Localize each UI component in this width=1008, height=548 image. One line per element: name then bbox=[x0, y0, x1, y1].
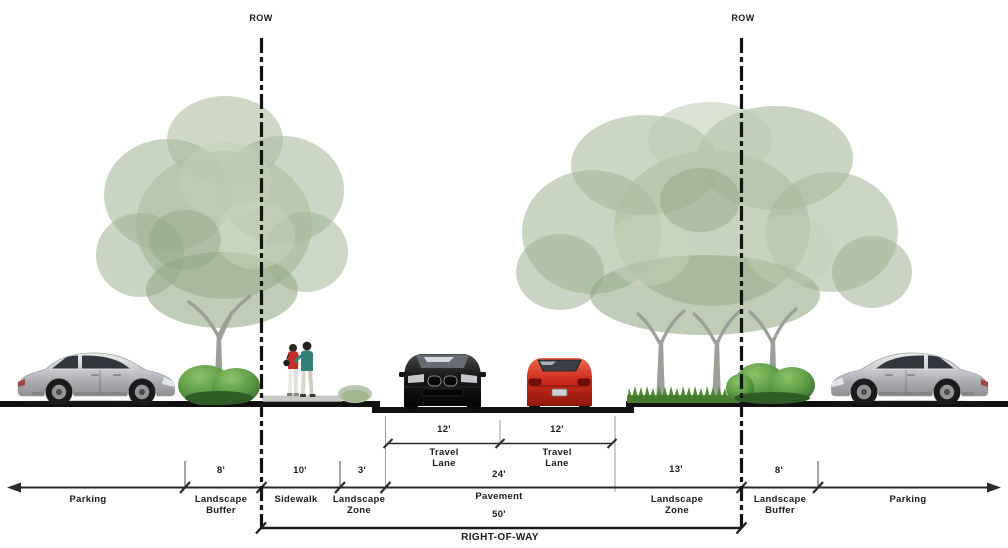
label-right-of-way: RIGHT-OF-WAY bbox=[461, 532, 539, 543]
label-parking-left: Parking bbox=[70, 494, 107, 505]
shrub-landscape-buffer-right bbox=[726, 363, 815, 404]
silver-sedan-parked-right bbox=[832, 353, 989, 406]
red-car-travel-lane bbox=[527, 358, 592, 409]
black-car-travel-lane bbox=[399, 354, 486, 409]
row-marker-left: ROW bbox=[249, 13, 272, 24]
label-landscape-buffer-right: Landscape Buffer bbox=[754, 494, 806, 516]
dim-travel-lane-left-width: 12' bbox=[437, 424, 451, 435]
walking-couple bbox=[283, 342, 315, 397]
dim-pavement-width: 24' bbox=[492, 469, 506, 480]
dim-travel-lane-right-width: 12' bbox=[550, 424, 564, 435]
label-pavement: Pavement bbox=[475, 491, 522, 502]
dim-landscape-buffer-left-width: 8' bbox=[217, 465, 225, 476]
label-landscape-zone-left: Landscape Zone bbox=[333, 494, 385, 516]
street-tree-cluster-right-canopy bbox=[516, 102, 912, 335]
dim-landscape-zone-left-width: 3' bbox=[358, 465, 366, 476]
label-travel-lane-right: Travel Lane bbox=[542, 447, 571, 469]
dim-landscape-zone-right-width: 13' bbox=[669, 464, 683, 475]
dim-right-of-way-width: 50' bbox=[492, 509, 506, 520]
shrub-landscape-buffer-left bbox=[178, 365, 260, 405]
dim-sidewalk-width: 10' bbox=[293, 465, 307, 476]
label-travel-lane-left: Travel Lane bbox=[429, 447, 458, 469]
label-landscape-zone-right: Landscape Zone bbox=[651, 494, 703, 516]
label-sidewalk: Sidewalk bbox=[274, 494, 317, 505]
silver-sedan-parked-left bbox=[18, 353, 175, 406]
dim-landscape-buffer-right-width: 8' bbox=[775, 465, 783, 476]
street-tree-left-canopy bbox=[96, 96, 348, 328]
shrub-landscape-zone-left bbox=[338, 385, 372, 403]
grass-landscape-zone-right bbox=[627, 386, 741, 403]
label-parking-right: Parking bbox=[890, 494, 927, 505]
row-marker-right: ROW bbox=[731, 13, 754, 24]
street-cross-section-diagram: ROW ROW 12' 12' Travel Lane Travel Lane … bbox=[0, 0, 1008, 548]
label-landscape-buffer-left: Landscape Buffer bbox=[195, 494, 247, 516]
diagram-artwork bbox=[0, 0, 1008, 548]
